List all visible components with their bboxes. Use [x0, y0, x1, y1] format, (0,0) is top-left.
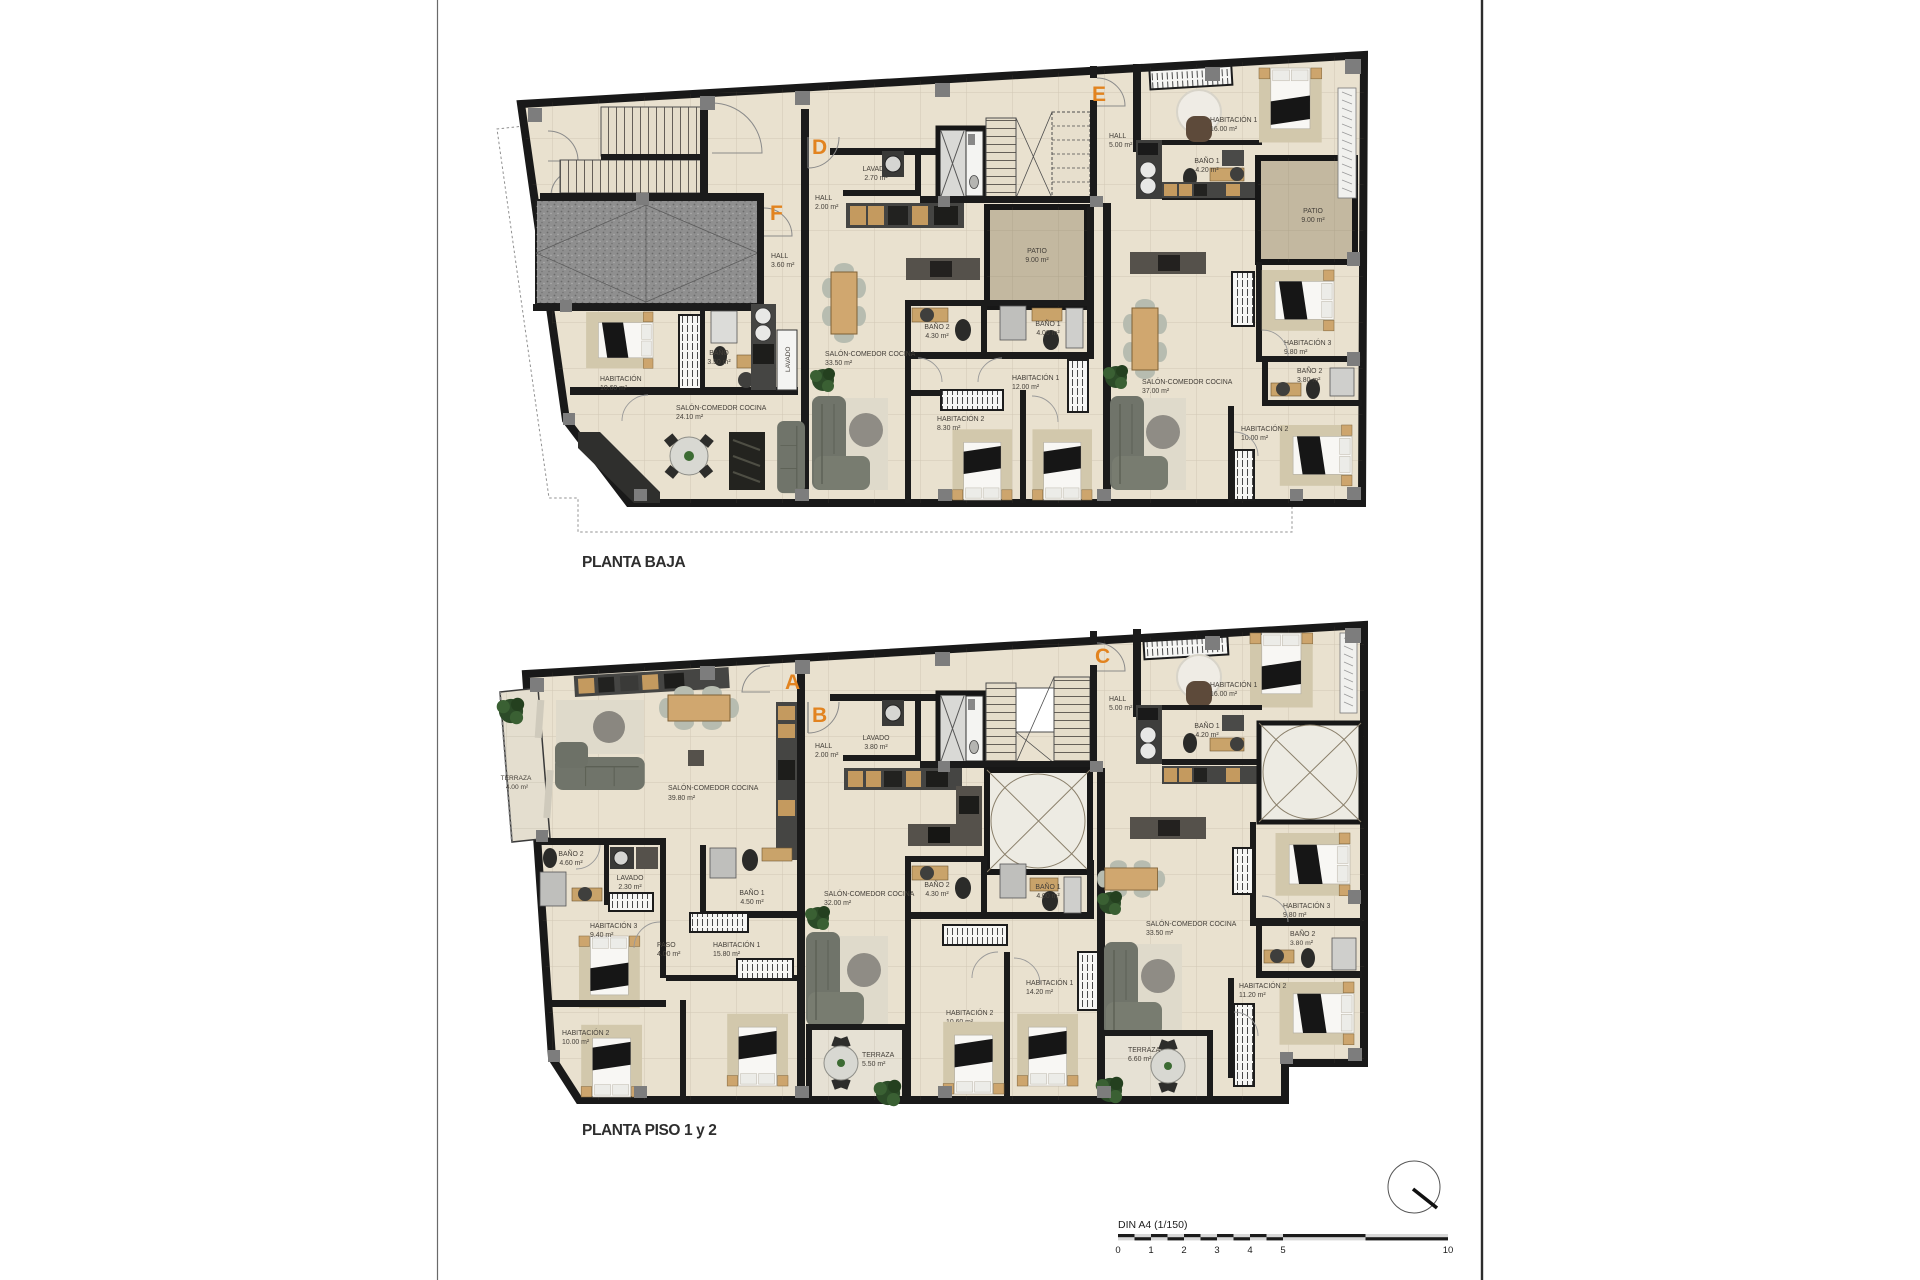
svg-text:32.00 m²: 32.00 m²: [824, 900, 852, 907]
svg-text:10.00 m²: 10.00 m²: [562, 1039, 590, 1046]
svg-text:A: A: [785, 671, 800, 694]
svg-text:HABITACIÓN 3: HABITACIÓN 3: [590, 921, 638, 930]
svg-text:BAÑO 1: BAÑO 1: [1194, 721, 1219, 730]
svg-text:HABITACIÓN 1: HABITACIÓN 1: [1210, 680, 1258, 689]
svg-text:2.00 m²: 2.00 m²: [815, 752, 839, 759]
svg-text:3.80 m²: 3.80 m²: [864, 744, 888, 751]
svg-text:PATIO: PATIO: [1303, 208, 1323, 215]
svg-text:9.40 m²: 9.40 m²: [590, 932, 614, 939]
svg-text:HALL: HALL: [815, 195, 832, 202]
svg-text:HABITACIÓN 1: HABITACIÓN 1: [1210, 115, 1258, 124]
svg-text:BAÑO 2: BAÑO 2: [558, 849, 583, 858]
svg-text:PLANTA PISO 1 y 2: PLANTA PISO 1 y 2: [582, 1122, 716, 1139]
svg-text:HABITACIÓN: HABITACIÓN: [600, 374, 642, 383]
svg-text:9.00 m²: 9.00 m²: [1301, 217, 1325, 224]
svg-text:4.00 m²: 4.00 m²: [657, 951, 681, 958]
svg-text:SALÓN-COMEDOR COCINA: SALÓN-COMEDOR COCINA: [1146, 919, 1237, 928]
svg-text:16.00 m²: 16.00 m²: [1210, 126, 1238, 133]
svg-text:HABITACIÓN 2: HABITACIÓN 2: [937, 414, 985, 423]
svg-text:HABITACIÓN 3: HABITACIÓN 3: [1284, 338, 1332, 347]
svg-text:4: 4: [1247, 1245, 1252, 1256]
svg-text:3.80 m²: 3.80 m²: [1297, 377, 1321, 384]
svg-text:16.00 m²: 16.00 m²: [1210, 691, 1238, 698]
svg-text:5.00 m²: 5.00 m²: [1109, 142, 1133, 149]
svg-text:24.10 m²: 24.10 m²: [676, 414, 704, 421]
svg-text:3: 3: [1214, 1245, 1219, 1256]
svg-text:SALÓN-COMEDOR COCINA: SALÓN-COMEDOR COCINA: [668, 783, 759, 792]
svg-text:LAVADO: LAVADO: [863, 735, 891, 742]
svg-text:37.00 m²: 37.00 m²: [1142, 388, 1170, 395]
svg-text:4.20 m²: 4.20 m²: [1195, 732, 1219, 739]
svg-text:PLANTA BAJA: PLANTA BAJA: [582, 554, 685, 571]
svg-text:BAÑO 2: BAÑO 2: [1290, 929, 1315, 938]
svg-text:10.00 m²: 10.00 m²: [1241, 435, 1269, 442]
svg-text:LAVADO: LAVADO: [617, 875, 645, 882]
svg-text:C: C: [1095, 645, 1110, 668]
svg-text:9.00 m²: 9.00 m²: [1025, 257, 1049, 264]
svg-text:HABITACIÓN 1: HABITACIÓN 1: [1012, 373, 1060, 382]
svg-text:PASO: PASO: [657, 942, 676, 949]
svg-text:5: 5: [1280, 1245, 1285, 1256]
svg-text:F: F: [770, 202, 783, 225]
svg-text:10.60 m²: 10.60 m²: [600, 385, 628, 392]
svg-text:SALÓN-COMEDOR COCINA: SALÓN-COMEDOR COCINA: [676, 403, 767, 412]
svg-text:6.60 m²: 6.60 m²: [1128, 1056, 1152, 1063]
svg-text:3.50 m²: 3.50 m²: [707, 359, 731, 366]
svg-text:B: B: [812, 704, 827, 727]
svg-text:HABITACIÓN 2: HABITACIÓN 2: [1239, 981, 1287, 990]
svg-text:PATIO: PATIO: [1027, 248, 1047, 255]
svg-text:4.00 m²: 4.00 m²: [1036, 330, 1060, 337]
svg-text:33.50 m²: 33.50 m²: [1146, 930, 1174, 937]
svg-text:HABITACIÓN 1: HABITACIÓN 1: [1026, 978, 1074, 987]
svg-text:BAÑO 1: BAÑO 1: [1194, 156, 1219, 165]
svg-text:HALL: HALL: [1109, 133, 1126, 140]
svg-text:D: D: [812, 136, 827, 159]
svg-text:3.80 m²: 3.80 m²: [1290, 940, 1314, 947]
svg-text:2.30 m²: 2.30 m²: [618, 884, 642, 891]
svg-text:HALL: HALL: [815, 743, 832, 750]
svg-text:TERRAZA: TERRAZA: [501, 775, 532, 782]
svg-text:BAÑO 2: BAÑO 2: [1297, 366, 1322, 375]
svg-text:E: E: [1092, 83, 1106, 106]
svg-text:HABITACIÓN 3: HABITACIÓN 3: [1283, 901, 1331, 910]
svg-text:BAÑO 2: BAÑO 2: [924, 322, 949, 331]
svg-text:4.30 m²: 4.30 m²: [925, 333, 949, 340]
svg-text:2: 2: [1181, 1245, 1186, 1256]
svg-text:2.00 m²: 2.00 m²: [815, 204, 839, 211]
svg-text:4.60 m²: 4.60 m²: [559, 860, 583, 867]
svg-text:TERRAZA: TERRAZA: [862, 1052, 895, 1059]
svg-text:4.30 m²: 4.30 m²: [925, 891, 949, 898]
svg-text:HALL: HALL: [1109, 696, 1126, 703]
svg-text:SALÓN-COMEDOR COCINA: SALÓN-COMEDOR COCINA: [825, 349, 916, 358]
svg-text:33.50 m²: 33.50 m²: [825, 360, 853, 367]
svg-text:1: 1: [1148, 1245, 1153, 1256]
svg-text:BAÑO 1: BAÑO 1: [1035, 319, 1060, 328]
svg-text:HALL: HALL: [771, 253, 788, 260]
svg-text:HABITACIÓN 1: HABITACIÓN 1: [713, 940, 761, 949]
svg-text:5.50 m²: 5.50 m²: [862, 1061, 886, 1068]
svg-text:HABITACIÓN 2: HABITACIÓN 2: [1241, 424, 1289, 433]
svg-text:3.60 m²: 3.60 m²: [771, 262, 795, 269]
svg-text:BAÑO 2: BAÑO 2: [924, 880, 949, 889]
svg-text:4.00 m²: 4.00 m²: [1036, 893, 1060, 900]
svg-text:11.20 m²: 11.20 m²: [1239, 992, 1266, 999]
svg-text:8.30 m²: 8.30 m²: [937, 425, 961, 432]
svg-text:BAÑO 1: BAÑO 1: [1035, 882, 1060, 891]
svg-text:39.80 m²: 39.80 m²: [668, 795, 696, 802]
svg-text:HABITACIÓN 2: HABITACIÓN 2: [562, 1028, 610, 1037]
svg-text:14.20 m²: 14.20 m²: [1026, 989, 1054, 996]
svg-text:15.80 m²: 15.80 m²: [713, 951, 741, 958]
svg-text:5.00 m²: 5.00 m²: [1109, 705, 1133, 712]
svg-text:BAÑO 1: BAÑO 1: [739, 888, 764, 897]
svg-text:4.00 m²: 4.00 m²: [506, 784, 529, 791]
svg-text:SALÓN-COMEDOR COCINA: SALÓN-COMEDOR COCINA: [1142, 377, 1233, 386]
svg-text:TERRAZA: TERRAZA: [1128, 1047, 1161, 1054]
svg-text:4.20 m²: 4.20 m²: [1195, 167, 1219, 174]
svg-text:LAVADO: LAVADO: [785, 347, 792, 372]
svg-text:10: 10: [1443, 1245, 1454, 1256]
svg-text:SALÓN-COMEDOR COCINA: SALÓN-COMEDOR COCINA: [824, 889, 915, 898]
svg-text:0: 0: [1115, 1245, 1120, 1256]
svg-text:DIN A4 (1/150): DIN A4 (1/150): [1118, 1219, 1187, 1231]
svg-text:HABITACIÓN 2: HABITACIÓN 2: [946, 1008, 994, 1017]
svg-text:4.50 m²: 4.50 m²: [740, 899, 764, 906]
svg-text:12.00 m²: 12.00 m²: [1012, 384, 1040, 391]
svg-text:BAÑO: BAÑO: [709, 348, 729, 357]
